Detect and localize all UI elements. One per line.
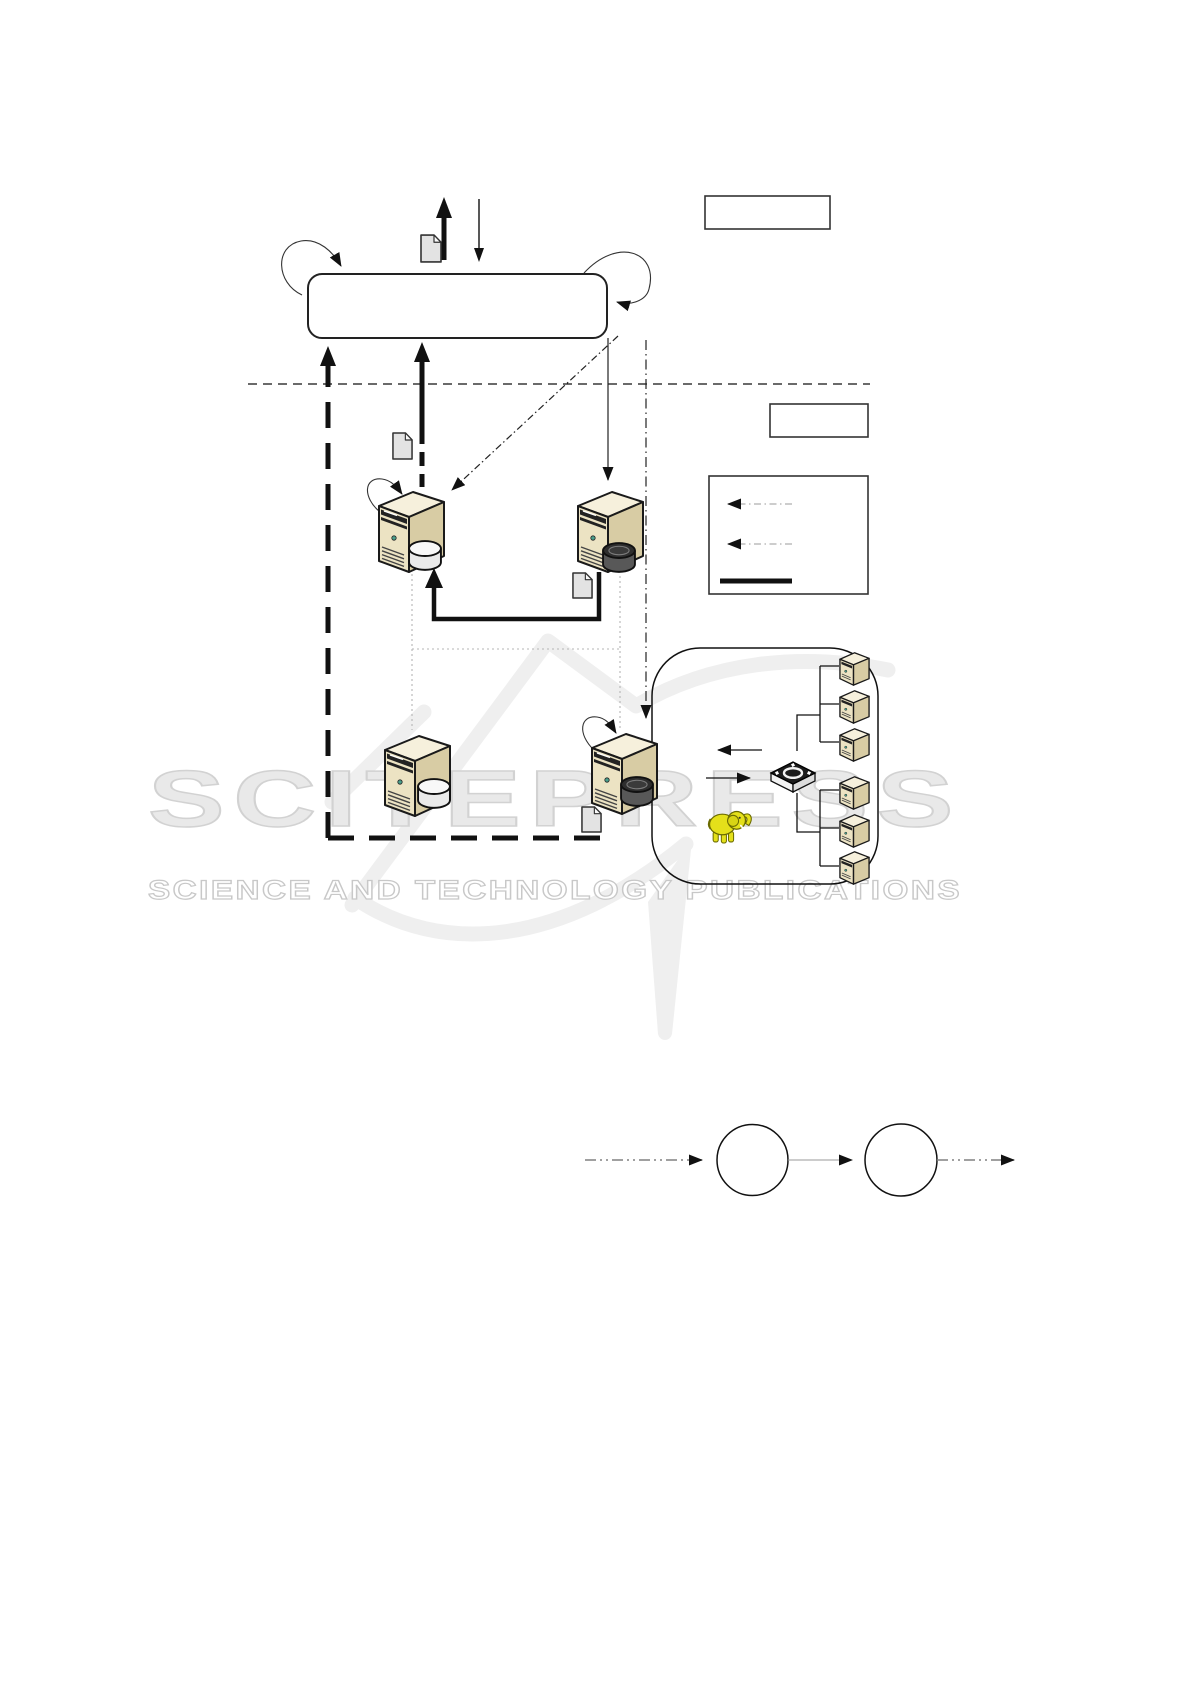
database-cylinder-light-icon (418, 779, 450, 808)
u-connector-arrowhead (425, 568, 443, 588)
server-lower-center (583, 717, 657, 814)
worker-server-icon-1 (840, 653, 869, 685)
database-cylinder-dark-icon (621, 777, 653, 806)
server-upper-left (367, 479, 444, 572)
empty-label-box-1 (705, 196, 830, 229)
document-icon-top (421, 235, 441, 262)
worker-server-icon-3 (840, 729, 869, 761)
state-circle-2 (865, 1124, 937, 1196)
legend-box (709, 476, 868, 594)
top-io-arrows (436, 197, 484, 262)
document-icon-mid-right (573, 573, 592, 598)
worker-server-icon-5 (840, 815, 869, 847)
empty-label-box-2 (770, 404, 868, 437)
worker-server-icon-4 (840, 777, 869, 809)
server-upper-right (578, 492, 643, 572)
server-lower-left (385, 736, 450, 816)
upload-arrow-icon (436, 197, 452, 218)
database-cylinder-dark-icon (603, 543, 635, 572)
dashdot-diagonal-arrow (452, 336, 618, 490)
worker-server-icon-6 (840, 852, 869, 884)
paper-figure-page: SCITEPRESS SCIENCE AND TECHNOLOGY PUBLIC… (0, 0, 1191, 1684)
document-icon-bottom (582, 807, 601, 832)
download-arrow-icon (474, 248, 484, 262)
state-flow (585, 1124, 1014, 1196)
document-icon-mid-left (393, 433, 412, 459)
process-queue-box (308, 274, 607, 338)
database-cylinder-light-icon (409, 541, 441, 570)
state-circle-1 (717, 1125, 788, 1196)
worker-server-icon-2 (840, 691, 869, 723)
watermark-subtitle: SCIENCE AND TECHNOLOGY PUBLICATIONS (148, 875, 962, 905)
